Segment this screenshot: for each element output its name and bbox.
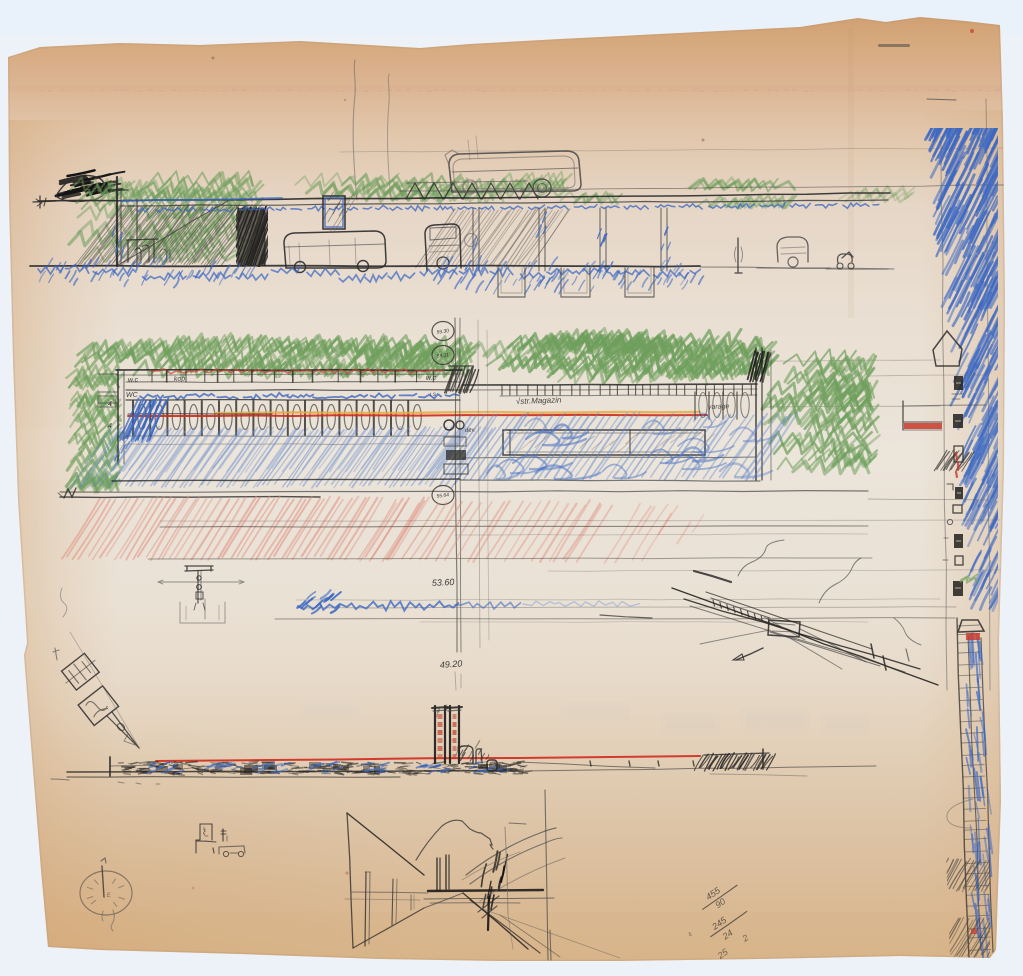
svg-text:koρ: koρ (174, 375, 186, 383)
svg-text:WC: WC (126, 392, 139, 399)
svg-text:w.c: w.c (426, 375, 437, 382)
svg-text:w.c: w.c (128, 377, 139, 384)
svg-text:49.20: 49.20 (439, 658, 462, 670)
svg-text:dev.: dev. (465, 427, 476, 434)
svg-text:4: 4 (108, 401, 112, 408)
svg-text:53.60: 53.60 (432, 577, 455, 588)
svg-text:√str.Magazin: √str.Magazin (516, 395, 562, 406)
svg-text:ξ: ξ (203, 830, 206, 836)
svg-text:ι s: ι s (430, 392, 436, 398)
